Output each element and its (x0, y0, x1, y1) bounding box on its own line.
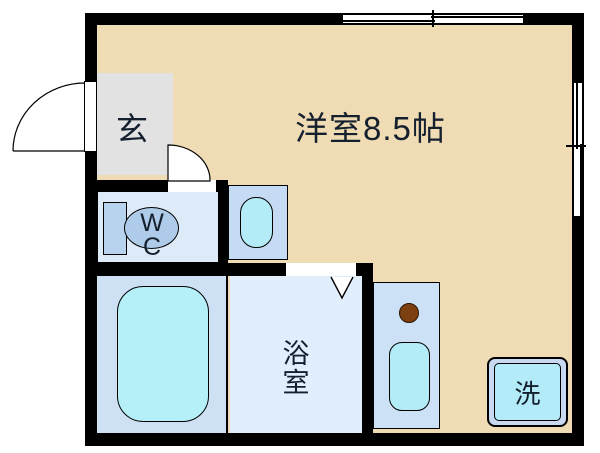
bathroom-label: 浴 室 (281, 340, 311, 398)
bathroom-label-char1: 浴 (281, 340, 311, 369)
stove-burner-icon (399, 303, 419, 323)
wc-label-c: C (126, 235, 178, 259)
right-wall (572, 13, 584, 446)
window-right (572, 83, 584, 216)
genkan-label: 玄 (116, 104, 148, 150)
bottom-wall (85, 433, 584, 446)
interior-door-swing (166, 143, 214, 183)
bathtub-icon (117, 286, 209, 422)
washbasin-sink-icon (240, 197, 273, 248)
kitchen-sink-icon (389, 342, 430, 411)
washing-machine: 洗 (487, 357, 568, 427)
bathroom-side-wall (362, 263, 373, 446)
window-top (343, 13, 523, 25)
left-wall (85, 13, 97, 446)
window-right-pane-line-top (576, 83, 578, 149)
window-top-pane-line-left (343, 20, 435, 22)
window-top-pane-line-right (431, 16, 523, 18)
main-room-label: 洋室8.5帖 (295, 102, 446, 150)
bathroom-door-gap (286, 263, 356, 276)
wc-label: W C (126, 211, 178, 259)
washing-machine-label: 洗 (514, 374, 540, 411)
wc-side-wall (218, 180, 228, 265)
window-top-center-tick (432, 10, 434, 27)
bathroom-door-mark (330, 276, 356, 300)
window-right-pane-line-bottom (580, 144, 582, 216)
bathroom-label-char2: 室 (281, 369, 311, 398)
wc-label-w: W (126, 211, 178, 235)
window-right-center-tick (566, 145, 586, 147)
entrance-door-swing-arc (10, 80, 90, 158)
washing-machine-drum: 洗 (494, 363, 561, 421)
floor-plan: W C 浴 室 洗 洋室8.5帖 玄 (0, 0, 600, 453)
